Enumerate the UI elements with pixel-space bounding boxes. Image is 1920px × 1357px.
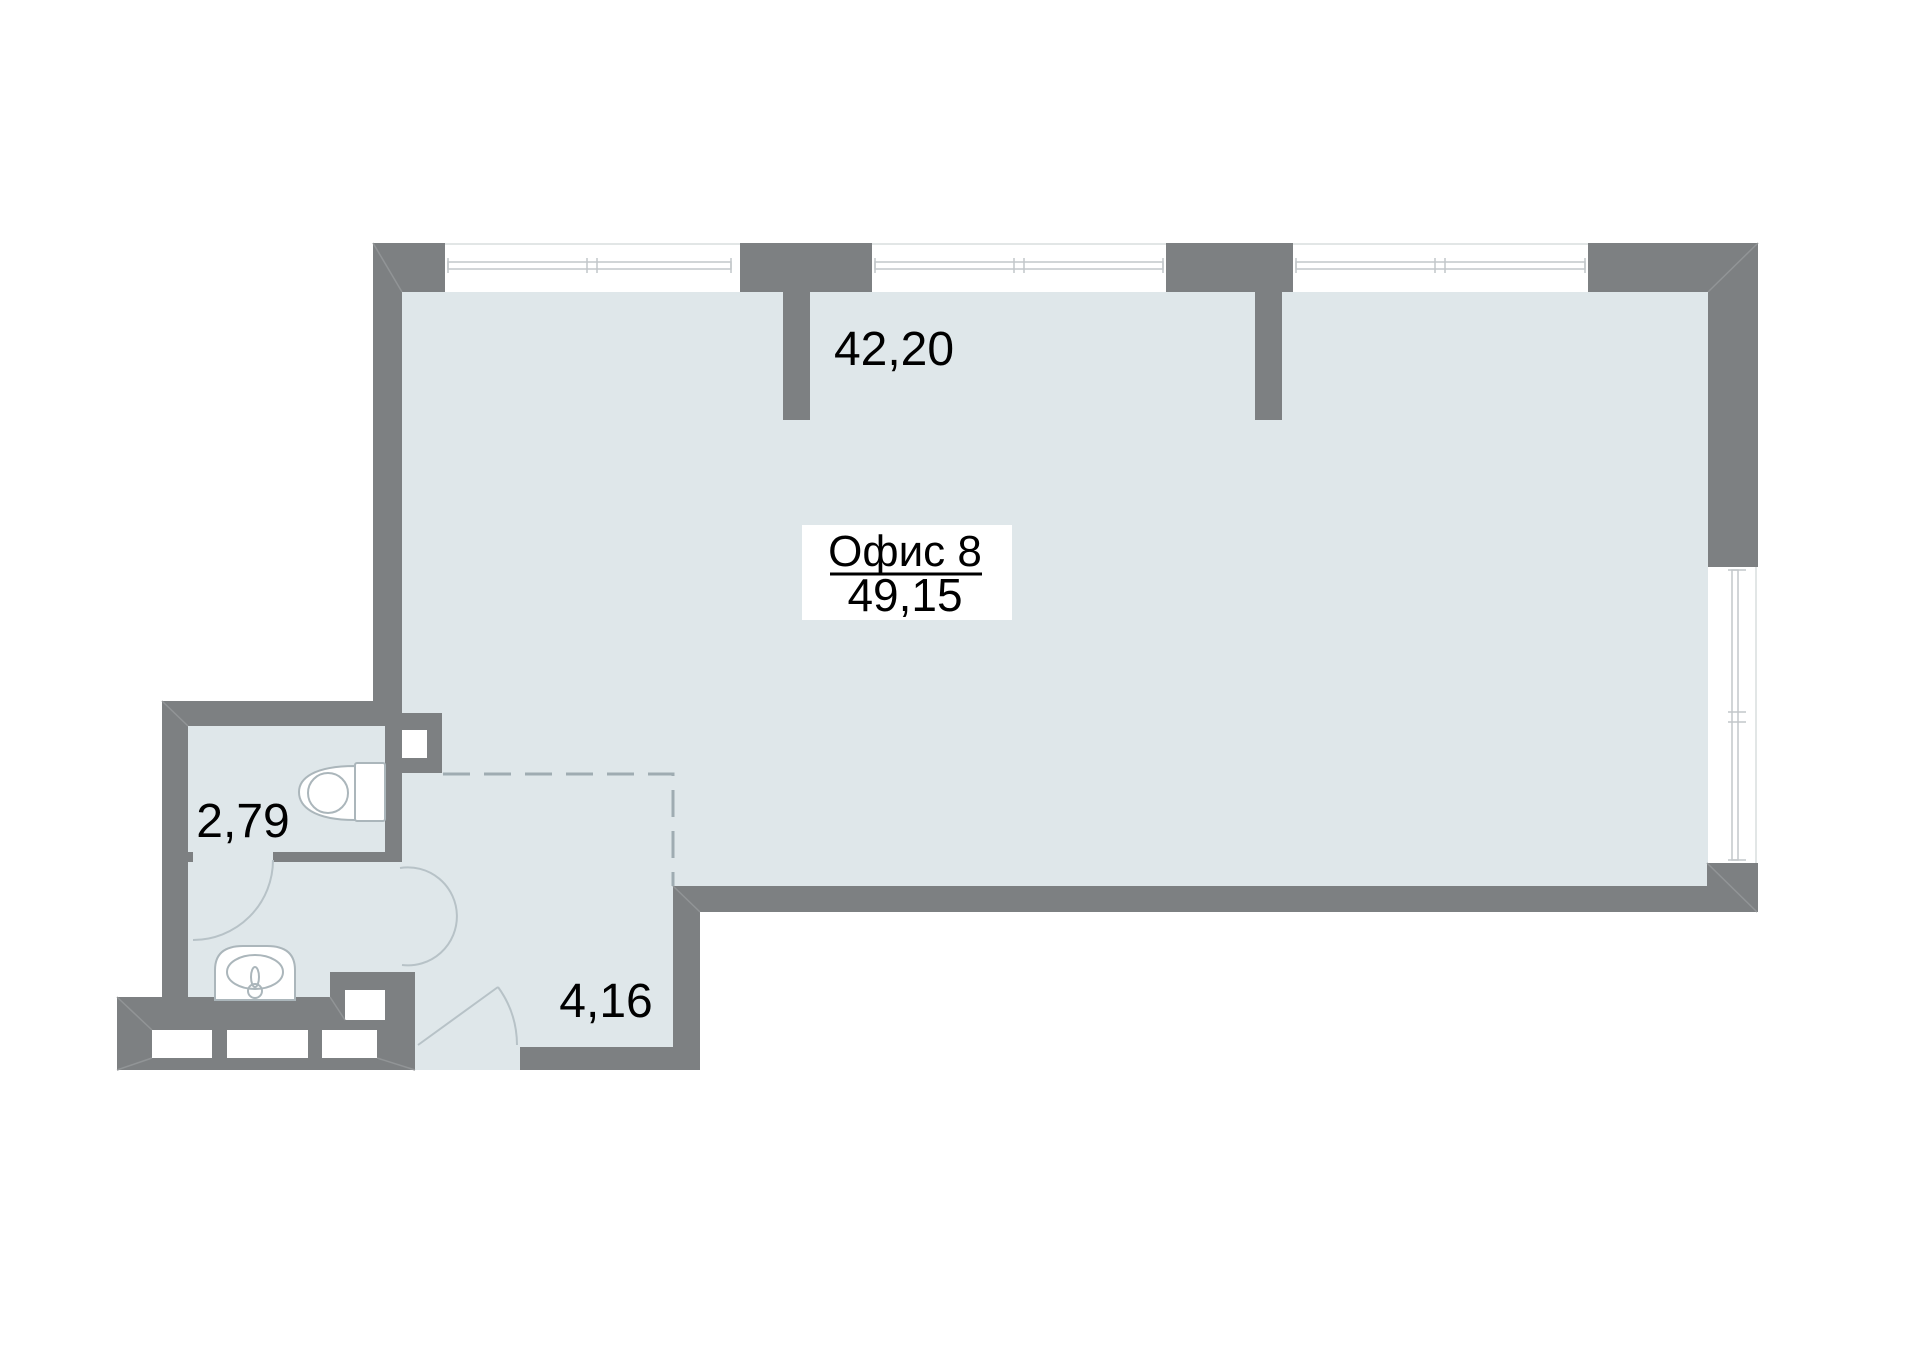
window-right [1732,570,1738,860]
wall-bathroom-partition-right [273,852,385,862]
sink-fixture [215,946,295,1000]
duct-opening [402,730,427,758]
office-area-label: 49,15 [847,569,962,621]
floor-plan-page: Офис 8 49,15 42,20 2,79 4,16 [0,0,1920,1357]
window-top-1 [448,262,731,269]
window-top-2 [875,262,1163,269]
entrance-opening-3 [322,1030,377,1058]
entrance-opening-2 [227,1030,308,1058]
wall-bathroom-partition-left [188,852,193,862]
bathroom-area-label: 2,79 [196,795,289,848]
hall-area-label: 4,16 [559,975,652,1028]
shaft-opening [345,990,385,1020]
window-top-3 [1296,262,1585,269]
entrance-opening-1 [152,1030,212,1058]
wall-hall-bottom [520,1047,700,1070]
floor-plan-drawing: Офис 8 49,15 42,20 2,79 4,16 [0,0,1920,1357]
toilet-tank [355,763,385,821]
main-room-area-label: 42,20 [834,323,954,376]
